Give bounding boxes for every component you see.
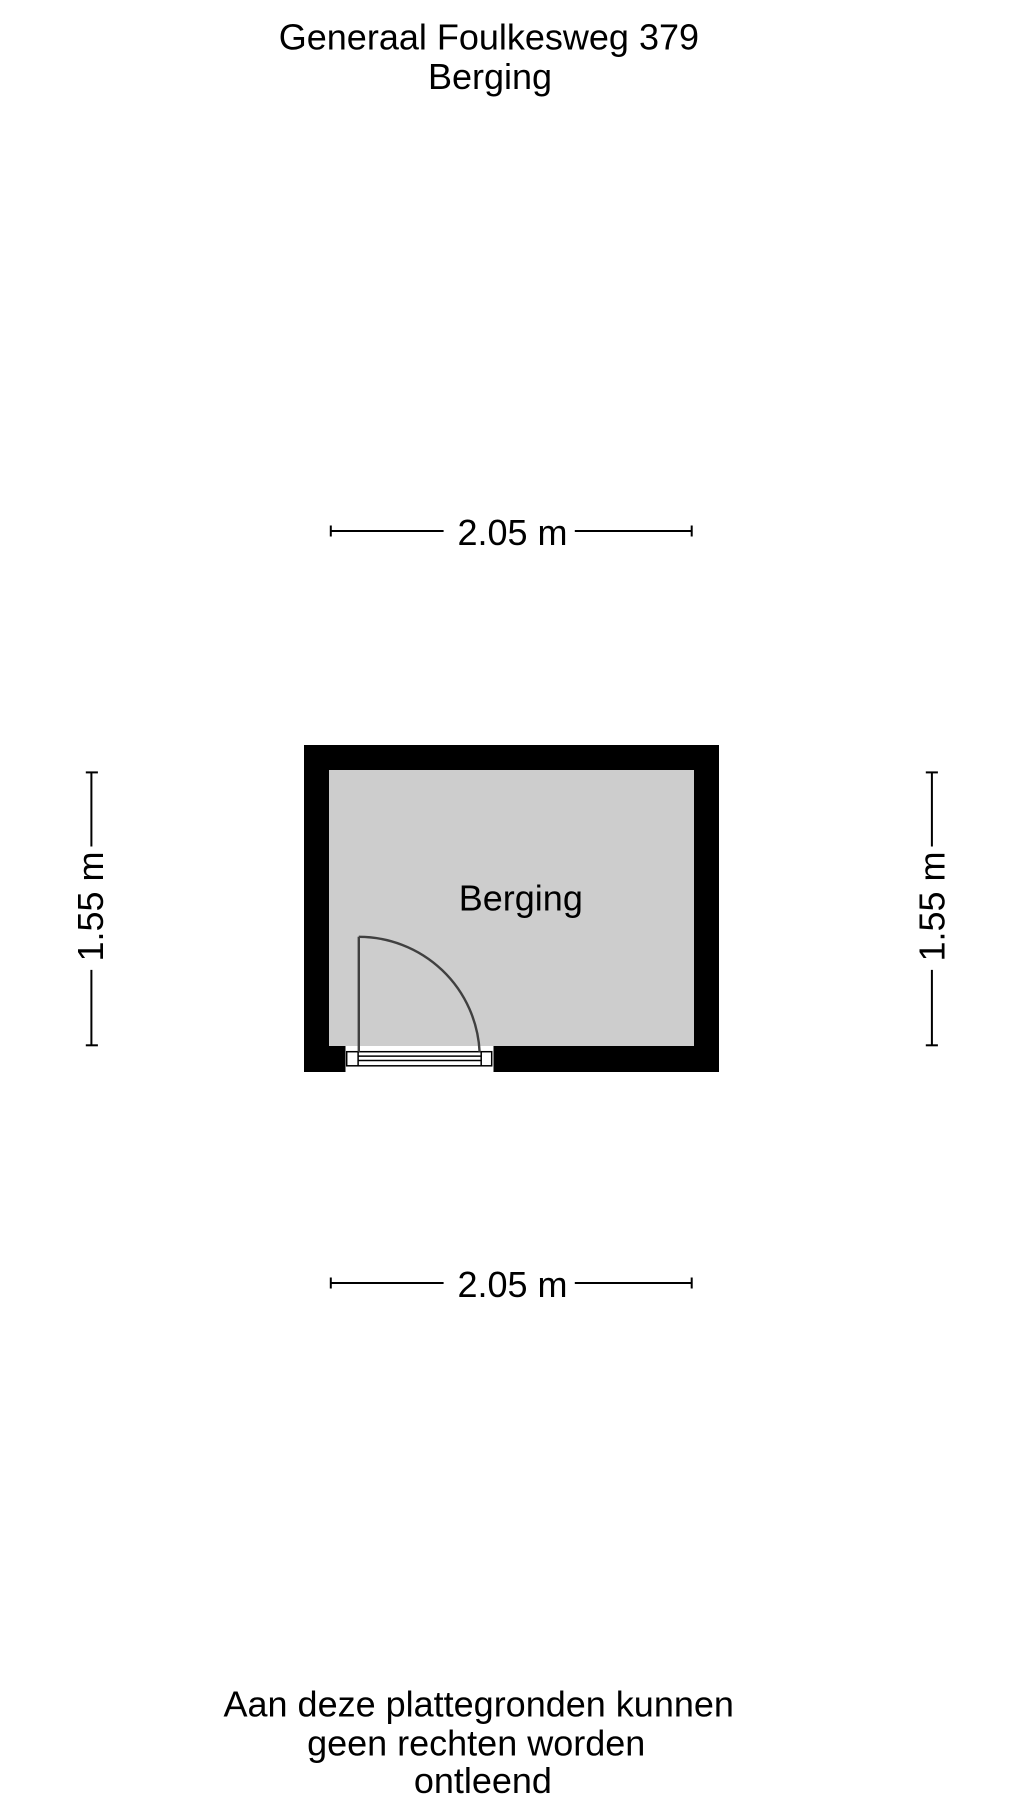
svg-text:Generaal Foulkesweg 379: Generaal Foulkesweg 379 — [279, 17, 699, 58]
svg-text:1.55 m: 1.55 m — [911, 851, 952, 961]
svg-text:2.05 m: 2.05 m — [457, 1264, 567, 1305]
svg-text:geen rechten worden: geen rechten worden — [307, 1723, 645, 1764]
svg-text:Aan deze plattegronden kunnen: Aan deze plattegronden kunnen — [223, 1683, 733, 1724]
svg-text:ontleend: ontleend — [414, 1760, 552, 1801]
svg-text:Berging: Berging — [459, 877, 583, 918]
svg-text:Berging: Berging — [428, 56, 552, 97]
svg-text:2.05 m: 2.05 m — [457, 512, 567, 553]
svg-text:1.55 m: 1.55 m — [70, 851, 111, 961]
